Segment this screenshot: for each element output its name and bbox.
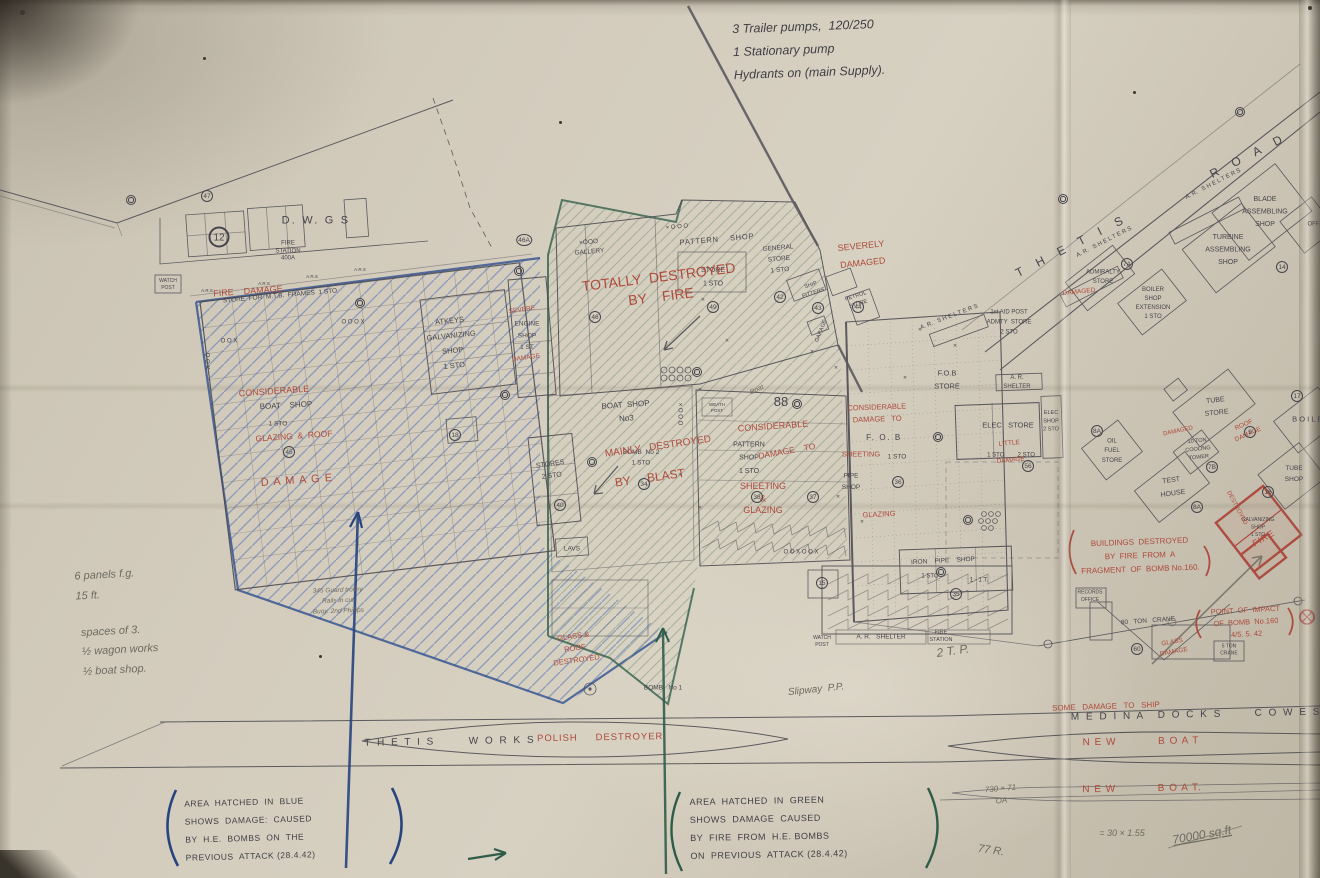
- building-number-47: 47: [201, 190, 213, 202]
- building-number-18: 18: [449, 429, 461, 441]
- building-number-42: 42: [774, 291, 786, 303]
- post-marker: [500, 390, 510, 400]
- post-marker: [587, 457, 597, 467]
- post-marker: [936, 567, 946, 577]
- building-number-7A: 7A: [1121, 258, 1133, 270]
- post-marker: [355, 298, 365, 308]
- bomb-damage-site-plan-photo: 3 Trailer pumps, 120/250 1 Stationary pu…: [0, 0, 1320, 878]
- building-number-56: 56: [1022, 460, 1034, 472]
- building-number-46: 46: [589, 311, 601, 323]
- building-number-12: 12: [209, 227, 230, 248]
- plan-linework: [0, 0, 1320, 878]
- post-marker: [1235, 107, 1245, 117]
- building-number-37: 37: [807, 491, 819, 503]
- building-number-16: 16: [1262, 486, 1274, 498]
- building-number-38: 38: [751, 491, 763, 503]
- building-number-8A: 8A: [1091, 425, 1103, 437]
- building-number-8A: 8A: [1191, 501, 1203, 513]
- post-marker: [933, 432, 943, 442]
- building-number-34: 34: [638, 478, 650, 490]
- post-marker: [692, 367, 702, 377]
- building-number-45: 45: [283, 446, 295, 458]
- building-number-49: 49: [707, 301, 719, 313]
- post-marker: [1058, 194, 1068, 204]
- building-number-46A: 46A: [516, 234, 532, 246]
- building-number-60: 60: [1131, 643, 1143, 655]
- post-marker: [514, 266, 524, 276]
- post-marker: [126, 195, 136, 205]
- post-marker: [963, 515, 973, 525]
- building-number-36: 36: [892, 476, 904, 488]
- building-number-7B: 7B: [1206, 461, 1218, 473]
- building-number-43: 43: [812, 302, 824, 314]
- building-number-40: 40: [554, 499, 566, 511]
- building-number-35: 35: [950, 588, 962, 600]
- building-number-14: 14: [1276, 261, 1288, 273]
- building-number-44: 44: [852, 301, 864, 313]
- post-marker: [792, 399, 802, 409]
- building-number-15: 15: [816, 577, 828, 589]
- pencil-marks: [1152, 556, 1262, 848]
- building-number-9: 9: [1244, 426, 1256, 438]
- building-number-17: 17: [1291, 390, 1303, 402]
- green-hatch-area: [548, 200, 848, 704]
